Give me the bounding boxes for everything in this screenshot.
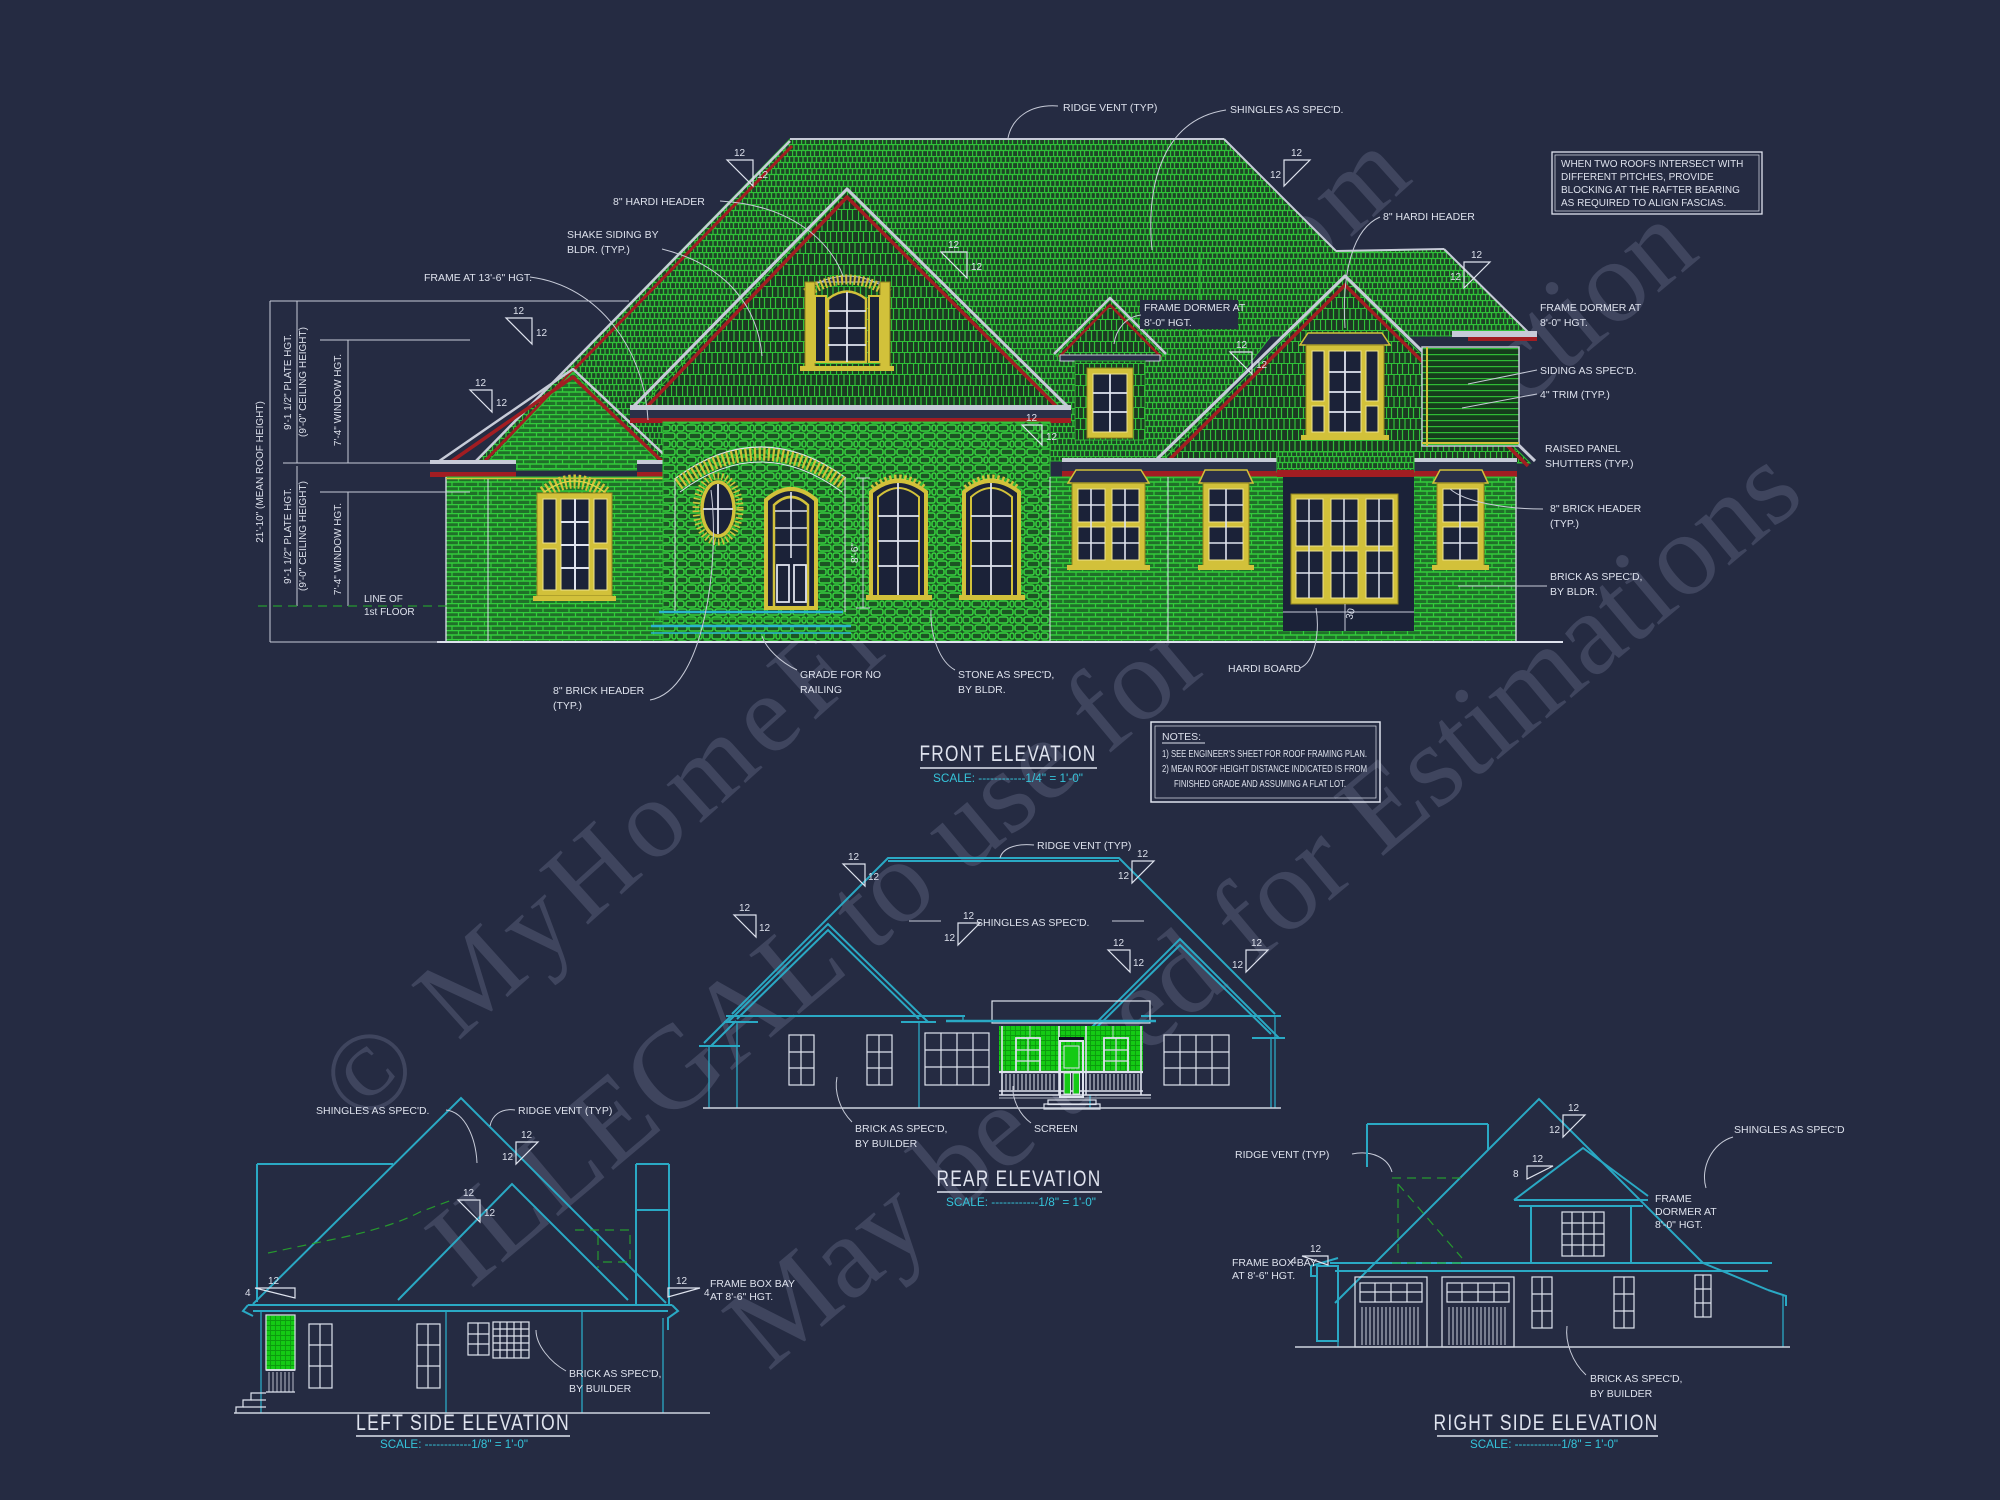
svg-text:12: 12 <box>1133 958 1145 969</box>
svg-text:12: 12 <box>1450 272 1462 283</box>
svg-text:RAISED PANEL: RAISED PANEL <box>1545 443 1621 455</box>
svg-text:SCALE: ------------1/4" = 1'-0: SCALE: ------------1/4" = 1'-0" <box>933 773 1083 785</box>
svg-text:RIGHT SIDE ELEVATION: RIGHT SIDE ELEVATION <box>1434 1410 1659 1435</box>
svg-text:WHEN TWO ROOFS INTERSECT WITH: WHEN TWO ROOFS INTERSECT WITH <box>1561 159 1743 170</box>
svg-text:7'-4" WINDOW HGT.: 7'-4" WINDOW HGT. <box>333 503 344 595</box>
svg-text:12: 12 <box>757 170 769 181</box>
svg-text:SHINGLES AS SPEC'D.: SHINGLES AS SPEC'D. <box>976 917 1089 929</box>
svg-text:SHINGLES AS SPEC'D.: SHINGLES AS SPEC'D. <box>1230 104 1343 116</box>
svg-text:12: 12 <box>1232 960 1244 971</box>
svg-text:FRAME DORMER AT: FRAME DORMER AT <box>1144 302 1246 314</box>
svg-text:NOTES:: NOTES: <box>1162 731 1201 743</box>
svg-text:12: 12 <box>971 262 983 273</box>
svg-text:12: 12 <box>1568 1103 1580 1114</box>
svg-text:SCALE: ------------1/8" = 1'-0: SCALE: ------------1/8" = 1'-0" <box>1470 1439 1618 1451</box>
svg-text:4" TRIM (TYP.): 4" TRIM (TYP.) <box>1540 389 1610 401</box>
svg-text:12: 12 <box>521 1130 533 1141</box>
svg-text:SHINGLES AS SPEC'D.: SHINGLES AS SPEC'D. <box>316 1105 429 1117</box>
svg-text:12: 12 <box>1549 1125 1561 1136</box>
svg-text:12: 12 <box>1118 871 1130 882</box>
svg-text:(TYP.): (TYP.) <box>1550 518 1579 530</box>
svg-text:STONE AS SPEC'D,: STONE AS SPEC'D, <box>958 669 1054 681</box>
svg-text:FRAME: FRAME <box>1655 1193 1692 1205</box>
svg-text:REAR ELEVATION: REAR ELEVATION <box>937 1166 1102 1191</box>
svg-text:AT 8'-6" HGT.: AT 8'-6" HGT. <box>1232 1270 1295 1282</box>
svg-text:12: 12 <box>502 1152 514 1163</box>
svg-text:8'-6": 8'-6" <box>850 543 861 563</box>
svg-text:8" BRICK HEADER: 8" BRICK HEADER <box>553 685 645 697</box>
svg-text:12: 12 <box>268 1276 280 1287</box>
svg-text:(9'-0" CEILING HEIGHT): (9'-0" CEILING HEIGHT) <box>298 327 309 437</box>
svg-text:8" HARDI HEADER: 8" HARDI HEADER <box>1383 211 1475 223</box>
svg-text:4: 4 <box>245 1288 251 1299</box>
svg-text:BY BUILDER: BY BUILDER <box>855 1138 918 1150</box>
svg-text:BY BLDR.: BY BLDR. <box>1550 586 1598 598</box>
svg-text:SCREEN: SCREEN <box>1034 1123 1078 1135</box>
svg-text:LEFT SIDE ELEVATION: LEFT SIDE ELEVATION <box>356 1410 570 1435</box>
svg-text:12: 12 <box>1256 360 1268 371</box>
svg-text:7'-4" WINDOW HGT.: 7'-4" WINDOW HGT. <box>333 354 344 446</box>
svg-text:12: 12 <box>536 328 548 339</box>
svg-text:12: 12 <box>1270 170 1282 181</box>
svg-text:12: 12 <box>1291 148 1303 159</box>
svg-text:BY BUILDER: BY BUILDER <box>1590 1388 1653 1400</box>
svg-text:DIFFERENT PITCHES, PROVIDE: DIFFERENT PITCHES, PROVIDE <box>1561 172 1714 183</box>
svg-text:12: 12 <box>496 398 508 409</box>
svg-text:(9'-0" CEILING HEIGHT): (9'-0" CEILING HEIGHT) <box>298 481 309 591</box>
svg-text:1st FLOOR: 1st FLOOR <box>364 607 415 618</box>
svg-text:FRAME BOX BAY: FRAME BOX BAY <box>710 1278 795 1290</box>
svg-text:8'-0" HGT.: 8'-0" HGT. <box>1540 317 1588 329</box>
svg-text:12: 12 <box>734 148 746 159</box>
svg-text:BRICK AS SPEC'D,: BRICK AS SPEC'D, <box>855 1123 947 1135</box>
svg-text:AS REQUIRED TO ALIGN FASCIAS.: AS REQUIRED TO ALIGN FASCIAS. <box>1561 198 1726 209</box>
svg-text:(TYP.): (TYP.) <box>553 700 582 712</box>
svg-text:FRAME AT 13'-6" HGT.: FRAME AT 13'-6" HGT. <box>424 272 532 284</box>
svg-text:8: 8 <box>1513 1169 1519 1180</box>
svg-text:9'-1 1/2" PLATE HGT.: 9'-1 1/2" PLATE HGT. <box>283 334 294 430</box>
svg-text:FINISHED GRADE AND ASSUMING A: FINISHED GRADE AND ASSUMING A FLAT LOT. <box>1174 778 1346 790</box>
svg-text:12: 12 <box>475 378 487 389</box>
svg-text:21'-10" (MEAN ROOF HEIGHT): 21'-10" (MEAN ROOF HEIGHT) <box>255 401 266 543</box>
svg-text:SIDING AS SPEC'D.: SIDING AS SPEC'D. <box>1540 365 1637 377</box>
svg-text:FRONT ELEVATION: FRONT ELEVATION <box>920 741 1097 766</box>
svg-text:12: 12 <box>739 903 751 914</box>
svg-text:SCALE: ------------1/8" = 1'-0: SCALE: ------------1/8" = 1'-0" <box>380 1439 528 1451</box>
svg-text:12: 12 <box>484 1208 496 1219</box>
svg-text:LINE OF: LINE OF <box>364 594 403 605</box>
svg-text:12: 12 <box>513 306 525 317</box>
svg-text:SHAKE SIDING BY: SHAKE SIDING BY <box>567 229 659 241</box>
svg-text:12: 12 <box>1471 250 1483 261</box>
svg-text:BLOCKING AT THE RAFTER BEARING: BLOCKING AT THE RAFTER BEARING <box>1561 185 1740 196</box>
svg-text:SHINGLES AS SPEC'D: SHINGLES AS SPEC'D <box>1734 1124 1845 1136</box>
svg-text:RAILING: RAILING <box>800 684 842 696</box>
svg-text:SCALE: ------------1/8" = 1'-0: SCALE: ------------1/8" = 1'-0" <box>946 1197 1096 1209</box>
svg-text:12: 12 <box>1113 938 1125 949</box>
svg-text:12: 12 <box>1046 432 1058 443</box>
svg-text:12: 12 <box>963 911 975 922</box>
svg-text:RIDGE VENT (TYP): RIDGE VENT (TYP) <box>518 1105 612 1117</box>
svg-text:8" BRICK HEADER: 8" BRICK HEADER <box>1550 503 1642 515</box>
svg-text:1) SEE ENGINEER'S SHEET FOR RO: 1) SEE ENGINEER'S SHEET FOR ROOF FRAMING… <box>1162 748 1367 760</box>
svg-text:AT 8'-6" HGT.: AT 8'-6" HGT. <box>710 1291 773 1303</box>
svg-text:BY BUILDER: BY BUILDER <box>569 1383 632 1395</box>
svg-text:BRICK AS SPEC'D,: BRICK AS SPEC'D, <box>1590 1373 1682 1385</box>
svg-text:HARDI BOARD: HARDI BOARD <box>1228 663 1301 675</box>
svg-text:12: 12 <box>944 933 956 944</box>
svg-text:12: 12 <box>1137 849 1149 860</box>
svg-text:RIDGE VENT (TYP): RIDGE VENT (TYP) <box>1235 1149 1329 1161</box>
svg-text:8'-0" HGT.: 8'-0" HGT. <box>1144 317 1192 329</box>
svg-text:GRADE FOR NO: GRADE FOR NO <box>800 669 881 681</box>
svg-text:12: 12 <box>1532 1154 1544 1165</box>
svg-text:12: 12 <box>676 1276 688 1287</box>
svg-text:12: 12 <box>848 852 860 863</box>
svg-text:FRAME BOX BAY: FRAME BOX BAY <box>1232 1257 1317 1269</box>
svg-text:SHUTTERS (TYP.): SHUTTERS (TYP.) <box>1545 458 1633 470</box>
svg-text:DORMER AT: DORMER AT <box>1655 1206 1717 1218</box>
svg-text:12: 12 <box>1251 938 1263 949</box>
svg-text:BRICK AS SPEC'D,: BRICK AS SPEC'D, <box>569 1368 661 1380</box>
svg-text:8" HARDI HEADER: 8" HARDI HEADER <box>613 196 705 208</box>
svg-text:FRAME DORMER AT: FRAME DORMER AT <box>1540 302 1642 314</box>
svg-text:BY BLDR.: BY BLDR. <box>958 684 1006 696</box>
svg-text:2) MEAN ROOF HEIGHT DISTANCE I: 2) MEAN ROOF HEIGHT DISTANCE INDICATED I… <box>1162 763 1367 775</box>
svg-text:12: 12 <box>759 923 771 934</box>
svg-text:BLDR. (TYP.): BLDR. (TYP.) <box>567 244 630 256</box>
svg-text:12: 12 <box>1026 413 1038 424</box>
svg-text:BRICK AS SPEC'D,: BRICK AS SPEC'D, <box>1550 571 1642 583</box>
svg-text:12: 12 <box>1236 340 1248 351</box>
svg-text:RIDGE VENT (TYP): RIDGE VENT (TYP) <box>1037 840 1131 852</box>
svg-text:12: 12 <box>948 240 960 251</box>
svg-text:12: 12 <box>868 872 880 883</box>
svg-text:12: 12 <box>463 1188 475 1199</box>
svg-text:RIDGE VENT (TYP): RIDGE VENT (TYP) <box>1063 102 1157 114</box>
svg-text:9'-1 1/2" PLATE HGT.: 9'-1 1/2" PLATE HGT. <box>283 488 294 584</box>
svg-text:12: 12 <box>1310 1244 1322 1255</box>
svg-text:8'-0" HGT.: 8'-0" HGT. <box>1655 1219 1703 1231</box>
